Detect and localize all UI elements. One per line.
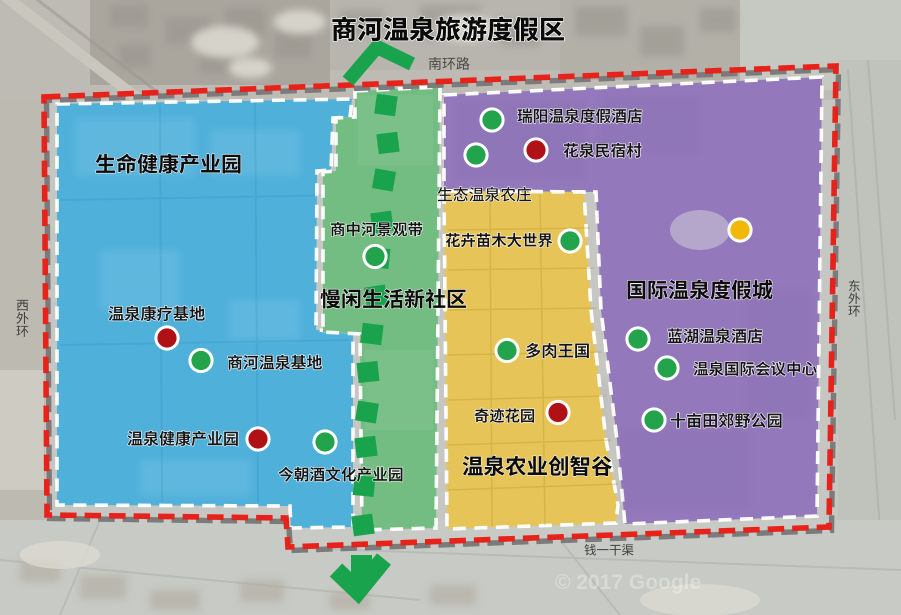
svg-text:© 2017 Google: © 2017 Google [555,571,701,594]
